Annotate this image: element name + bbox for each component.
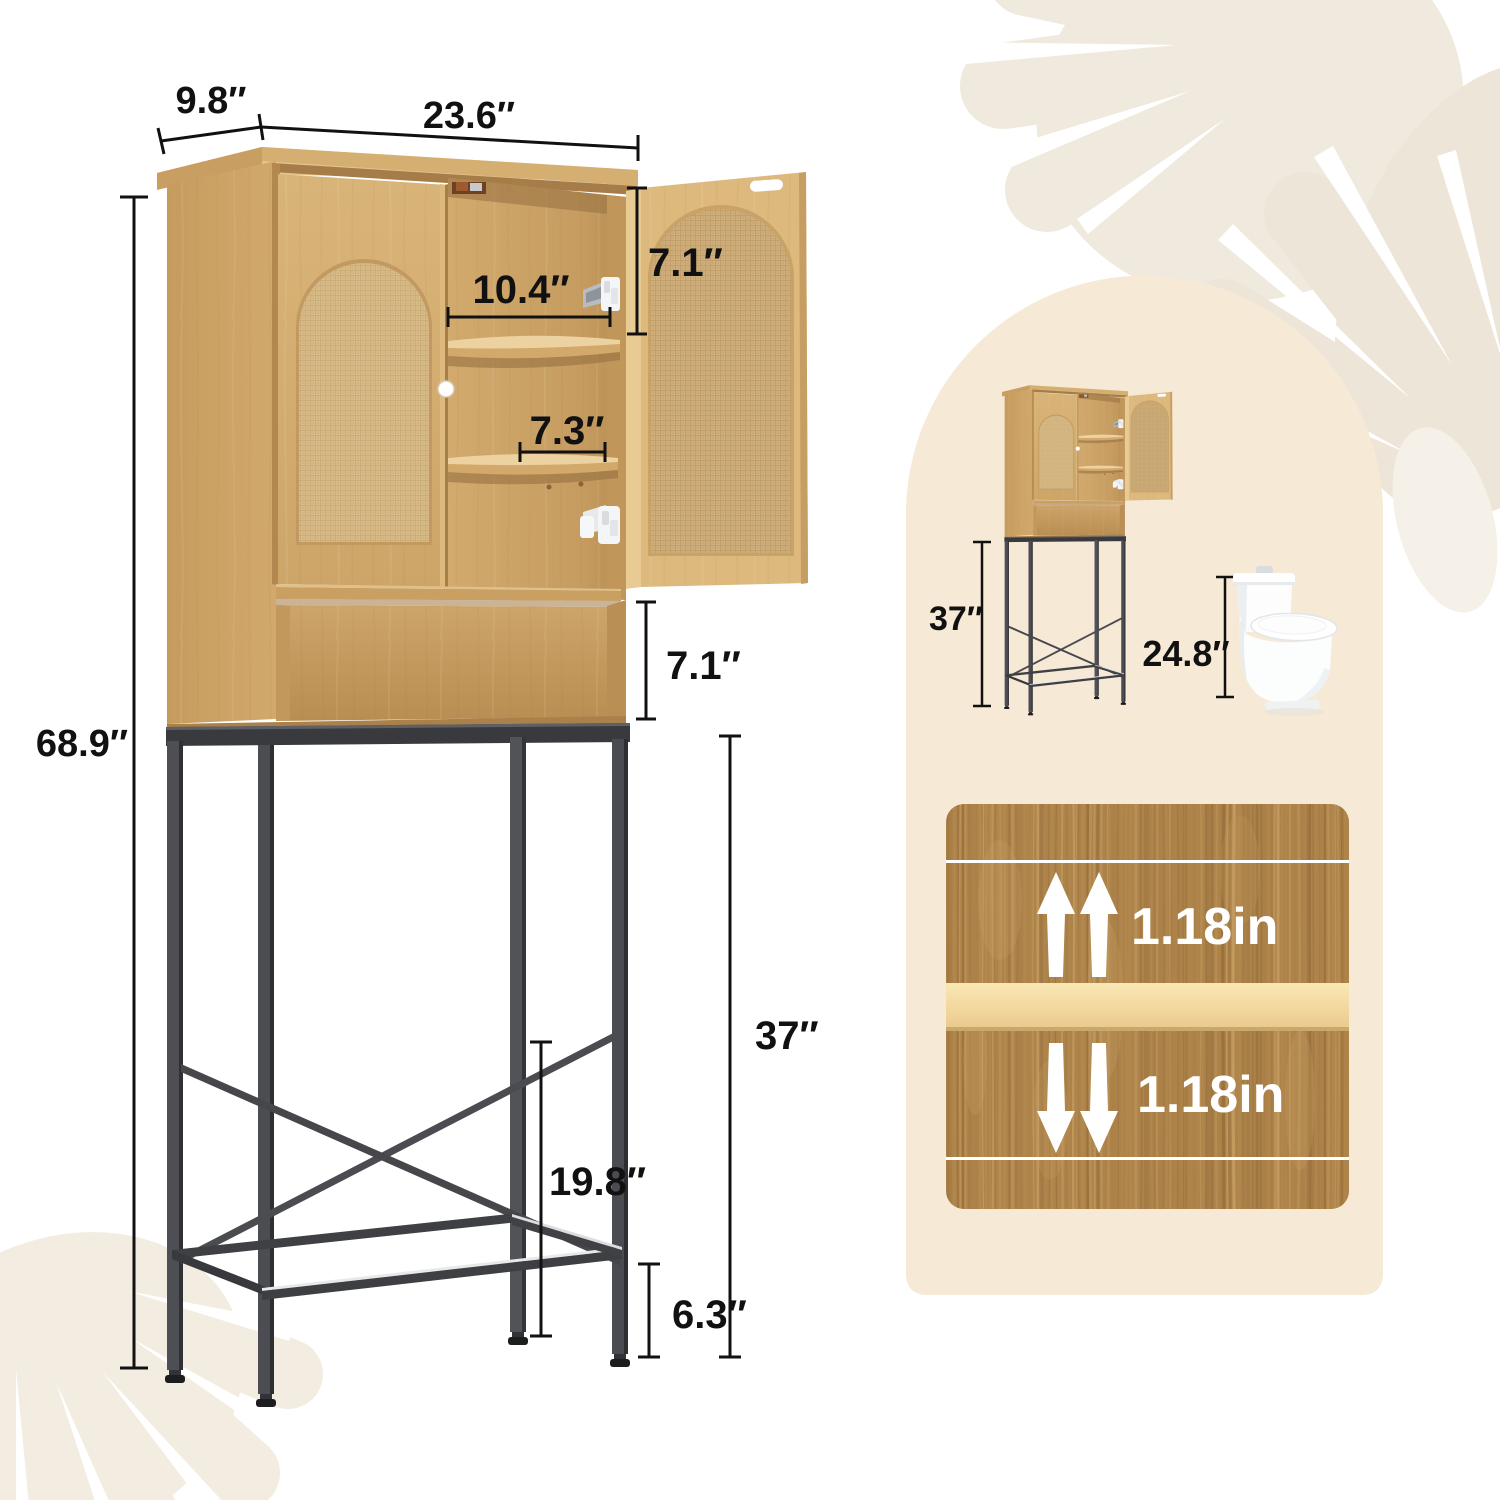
svg-text:24.8″: 24.8″ xyxy=(1142,633,1229,674)
svg-text:1.18in: 1.18in xyxy=(1137,1066,1284,1124)
svg-text:1.18in: 1.18in xyxy=(1131,898,1278,956)
svg-text:10.4″: 10.4″ xyxy=(472,268,569,312)
svg-text:23.6″: 23.6″ xyxy=(423,95,515,137)
svg-text:68.9″: 68.9″ xyxy=(36,723,128,765)
svg-text:7.1″: 7.1″ xyxy=(648,241,723,285)
svg-text:7.3″: 7.3″ xyxy=(530,409,605,453)
svg-text:19.8″: 19.8″ xyxy=(549,1160,646,1204)
svg-text:37″: 37″ xyxy=(755,1014,819,1058)
svg-text:7.1″: 7.1″ xyxy=(666,644,741,688)
svg-text:6.3″: 6.3″ xyxy=(672,1293,747,1337)
svg-text:37″: 37″ xyxy=(929,600,983,638)
svg-text:9.8″: 9.8″ xyxy=(175,80,246,122)
